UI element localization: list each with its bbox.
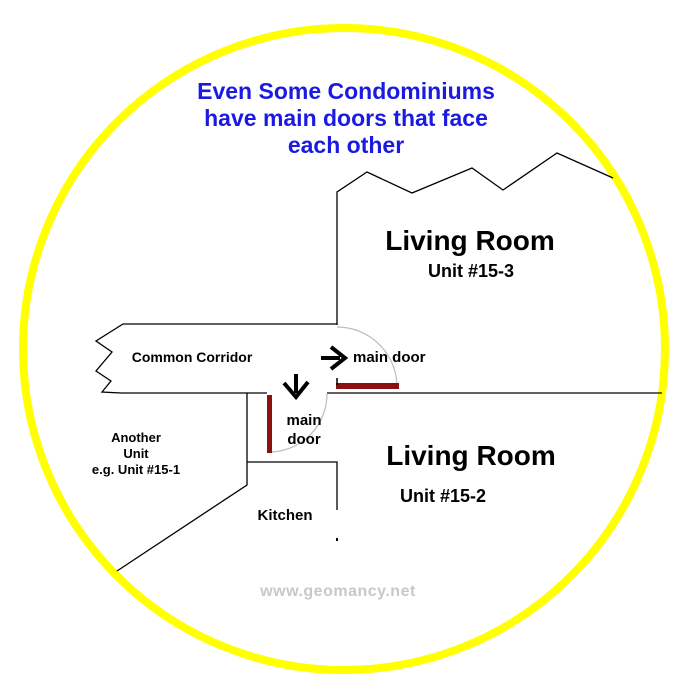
- down-arrow-icon: [284, 374, 308, 397]
- unit2-number: Unit #15-2: [363, 487, 523, 505]
- unit3-number: Unit #15-3: [391, 262, 551, 280]
- floor-plan-diagram: Even Some Condominiums have main doors t…: [0, 0, 686, 700]
- another-unit-label: Another Unit e.g. Unit #15-1: [66, 430, 206, 478]
- bottom-main-door-label: main door: [264, 411, 344, 449]
- unit2-room-name: Living Room: [351, 442, 591, 470]
- kitchen-label: Kitchen: [245, 508, 325, 523]
- another-unit-line3: e.g. Unit #15-1: [66, 462, 206, 478]
- another-unit-walls: [117, 393, 247, 571]
- another-unit-line2: Unit: [66, 446, 206, 462]
- bottom-main-door-label-line2: door: [264, 430, 344, 449]
- kitchen-wall-dot: [336, 538, 338, 541]
- common-corridor-label: Common Corridor: [122, 350, 262, 364]
- unit3-room-name: Living Room: [350, 227, 590, 255]
- top-main-door-label: main door: [353, 350, 426, 365]
- another-unit-line1: Another: [66, 430, 206, 446]
- right-arrow-icon: [321, 347, 345, 369]
- watermark: www.geomancy.net: [238, 583, 438, 601]
- title-line-1: Even Some Condominiums: [146, 78, 546, 105]
- kitchen-walls: [247, 462, 337, 510]
- bottom-main-door-label-line1: main: [264, 411, 344, 430]
- title-line-2: have main doors that face: [146, 105, 546, 132]
- diagram-title: Even Some Condominiums have main doors t…: [146, 78, 546, 159]
- title-line-3: each other: [146, 132, 546, 159]
